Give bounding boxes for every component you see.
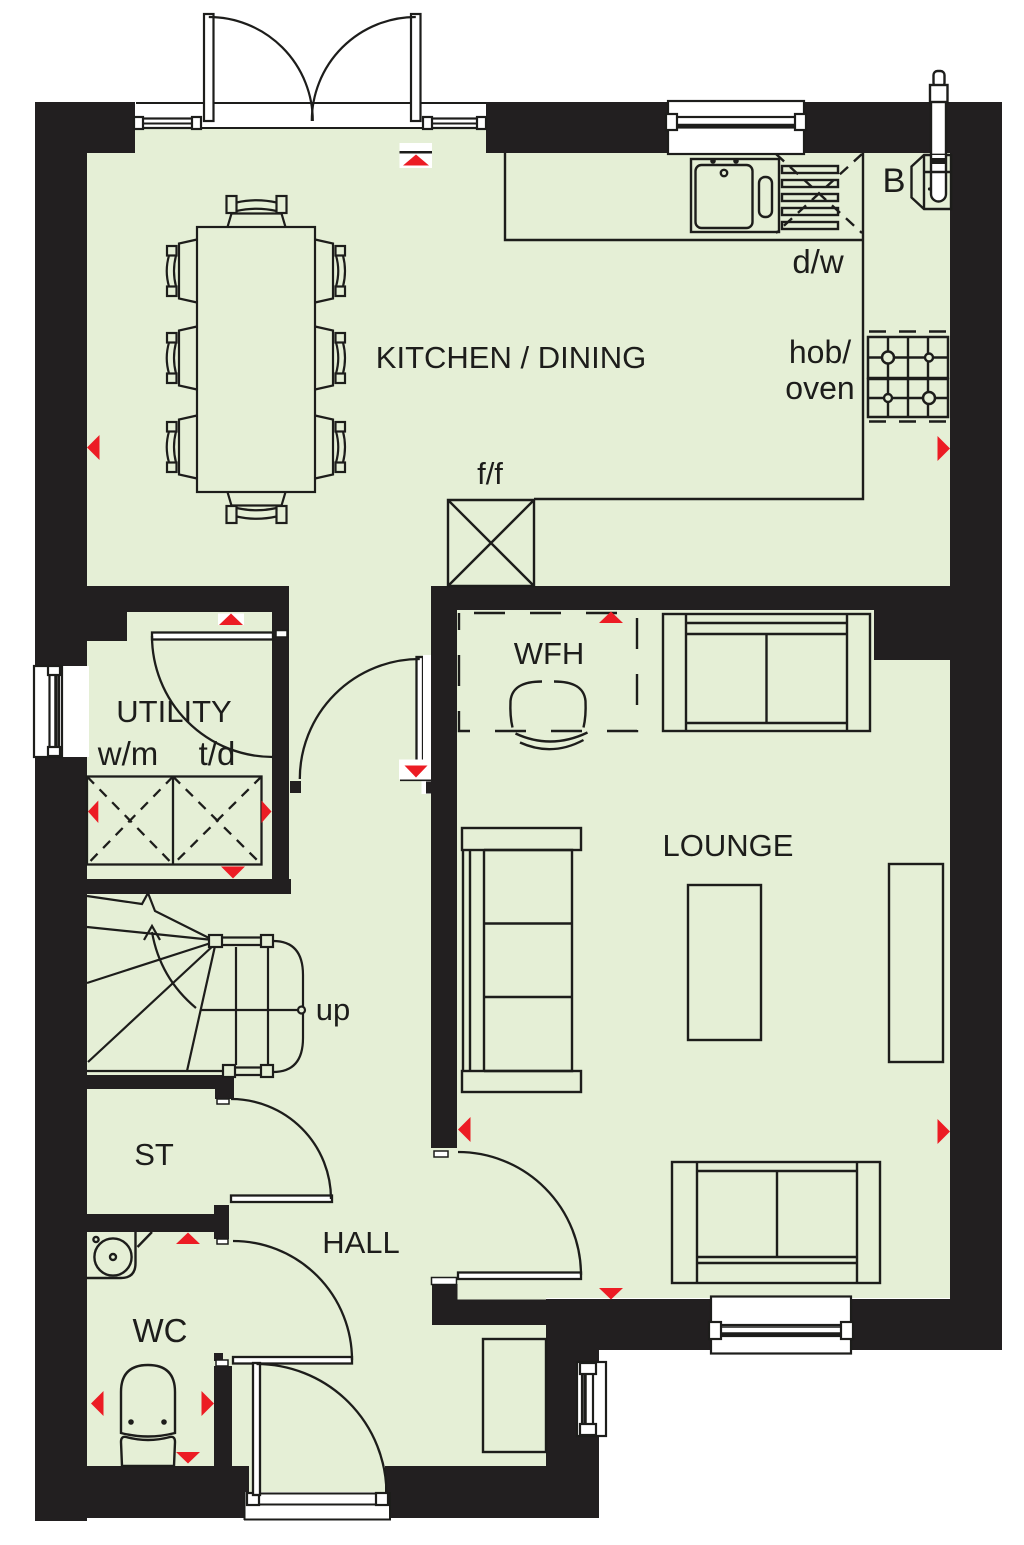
svg-text:HALL: HALL (322, 1225, 400, 1260)
svg-text:ST: ST (134, 1137, 174, 1172)
svg-text:KITCHEN / DINING: KITCHEN / DINING (376, 340, 646, 375)
svg-text:B: B (882, 162, 905, 200)
svg-text:hob/: hob/ (789, 334, 851, 370)
svg-text:WC: WC (133, 1312, 188, 1349)
svg-text:UTILITY: UTILITY (116, 694, 231, 729)
svg-text:WFH: WFH (514, 636, 585, 671)
svg-text:d/w: d/w (792, 243, 844, 280)
svg-text:LOUNGE: LOUNGE (663, 828, 794, 863)
svg-text:oven: oven (785, 370, 854, 406)
svg-text:w/m: w/m (97, 735, 159, 772)
svg-text:f/f: f/f (477, 456, 503, 491)
svg-text:t/d: t/d (199, 735, 236, 772)
svg-text:up: up (316, 992, 350, 1027)
